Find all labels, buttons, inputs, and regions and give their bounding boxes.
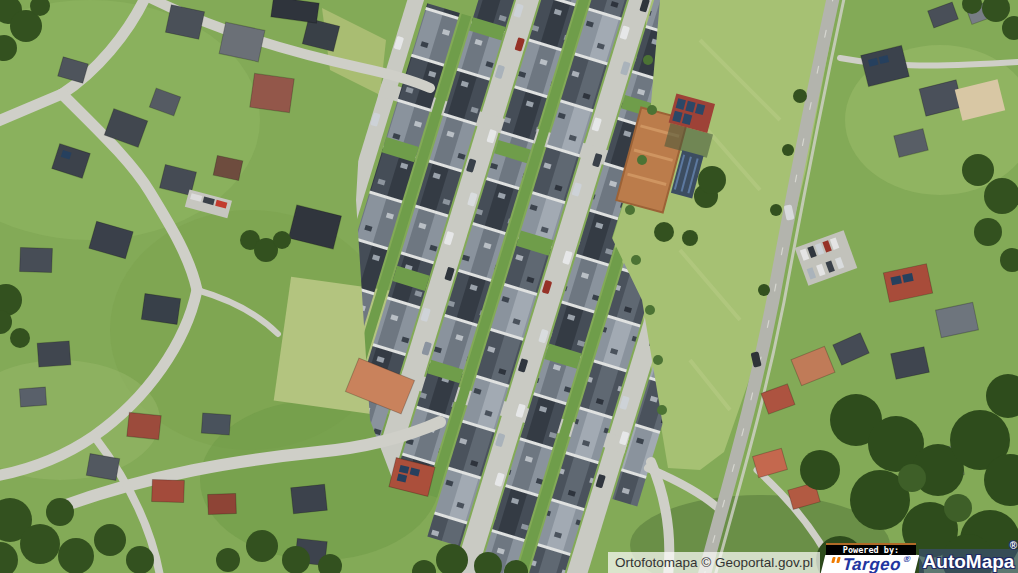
- attribution-text: Ortofotomapa © Geoportal.gov.pl: [615, 555, 813, 570]
- aerial-imagery: [0, 0, 1018, 573]
- map-viewport[interactable]: Ortofotomapa © Geoportal.gov.pl Powered …: [0, 0, 1018, 573]
- automapa-registered-mark: ®: [1010, 540, 1017, 551]
- automapa-logo[interactable]: AutoMapa ®: [919, 549, 1018, 573]
- powered-by-badge: Powered by:: [826, 543, 916, 555]
- targeo-registered-mark: ®: [902, 554, 911, 564]
- targeo-wordmark: Targeo: [841, 556, 904, 573]
- targeo-logo[interactable]: Targeo ®: [821, 555, 919, 573]
- powered-by-label: Powered by:: [843, 545, 899, 555]
- map-attribution-bar: Ortofotomapa © Geoportal.gov.pl: [608, 552, 820, 573]
- automapa-wordmark: AutoMapa: [923, 552, 1015, 571]
- targeo-quotes-icon: [831, 557, 842, 563]
